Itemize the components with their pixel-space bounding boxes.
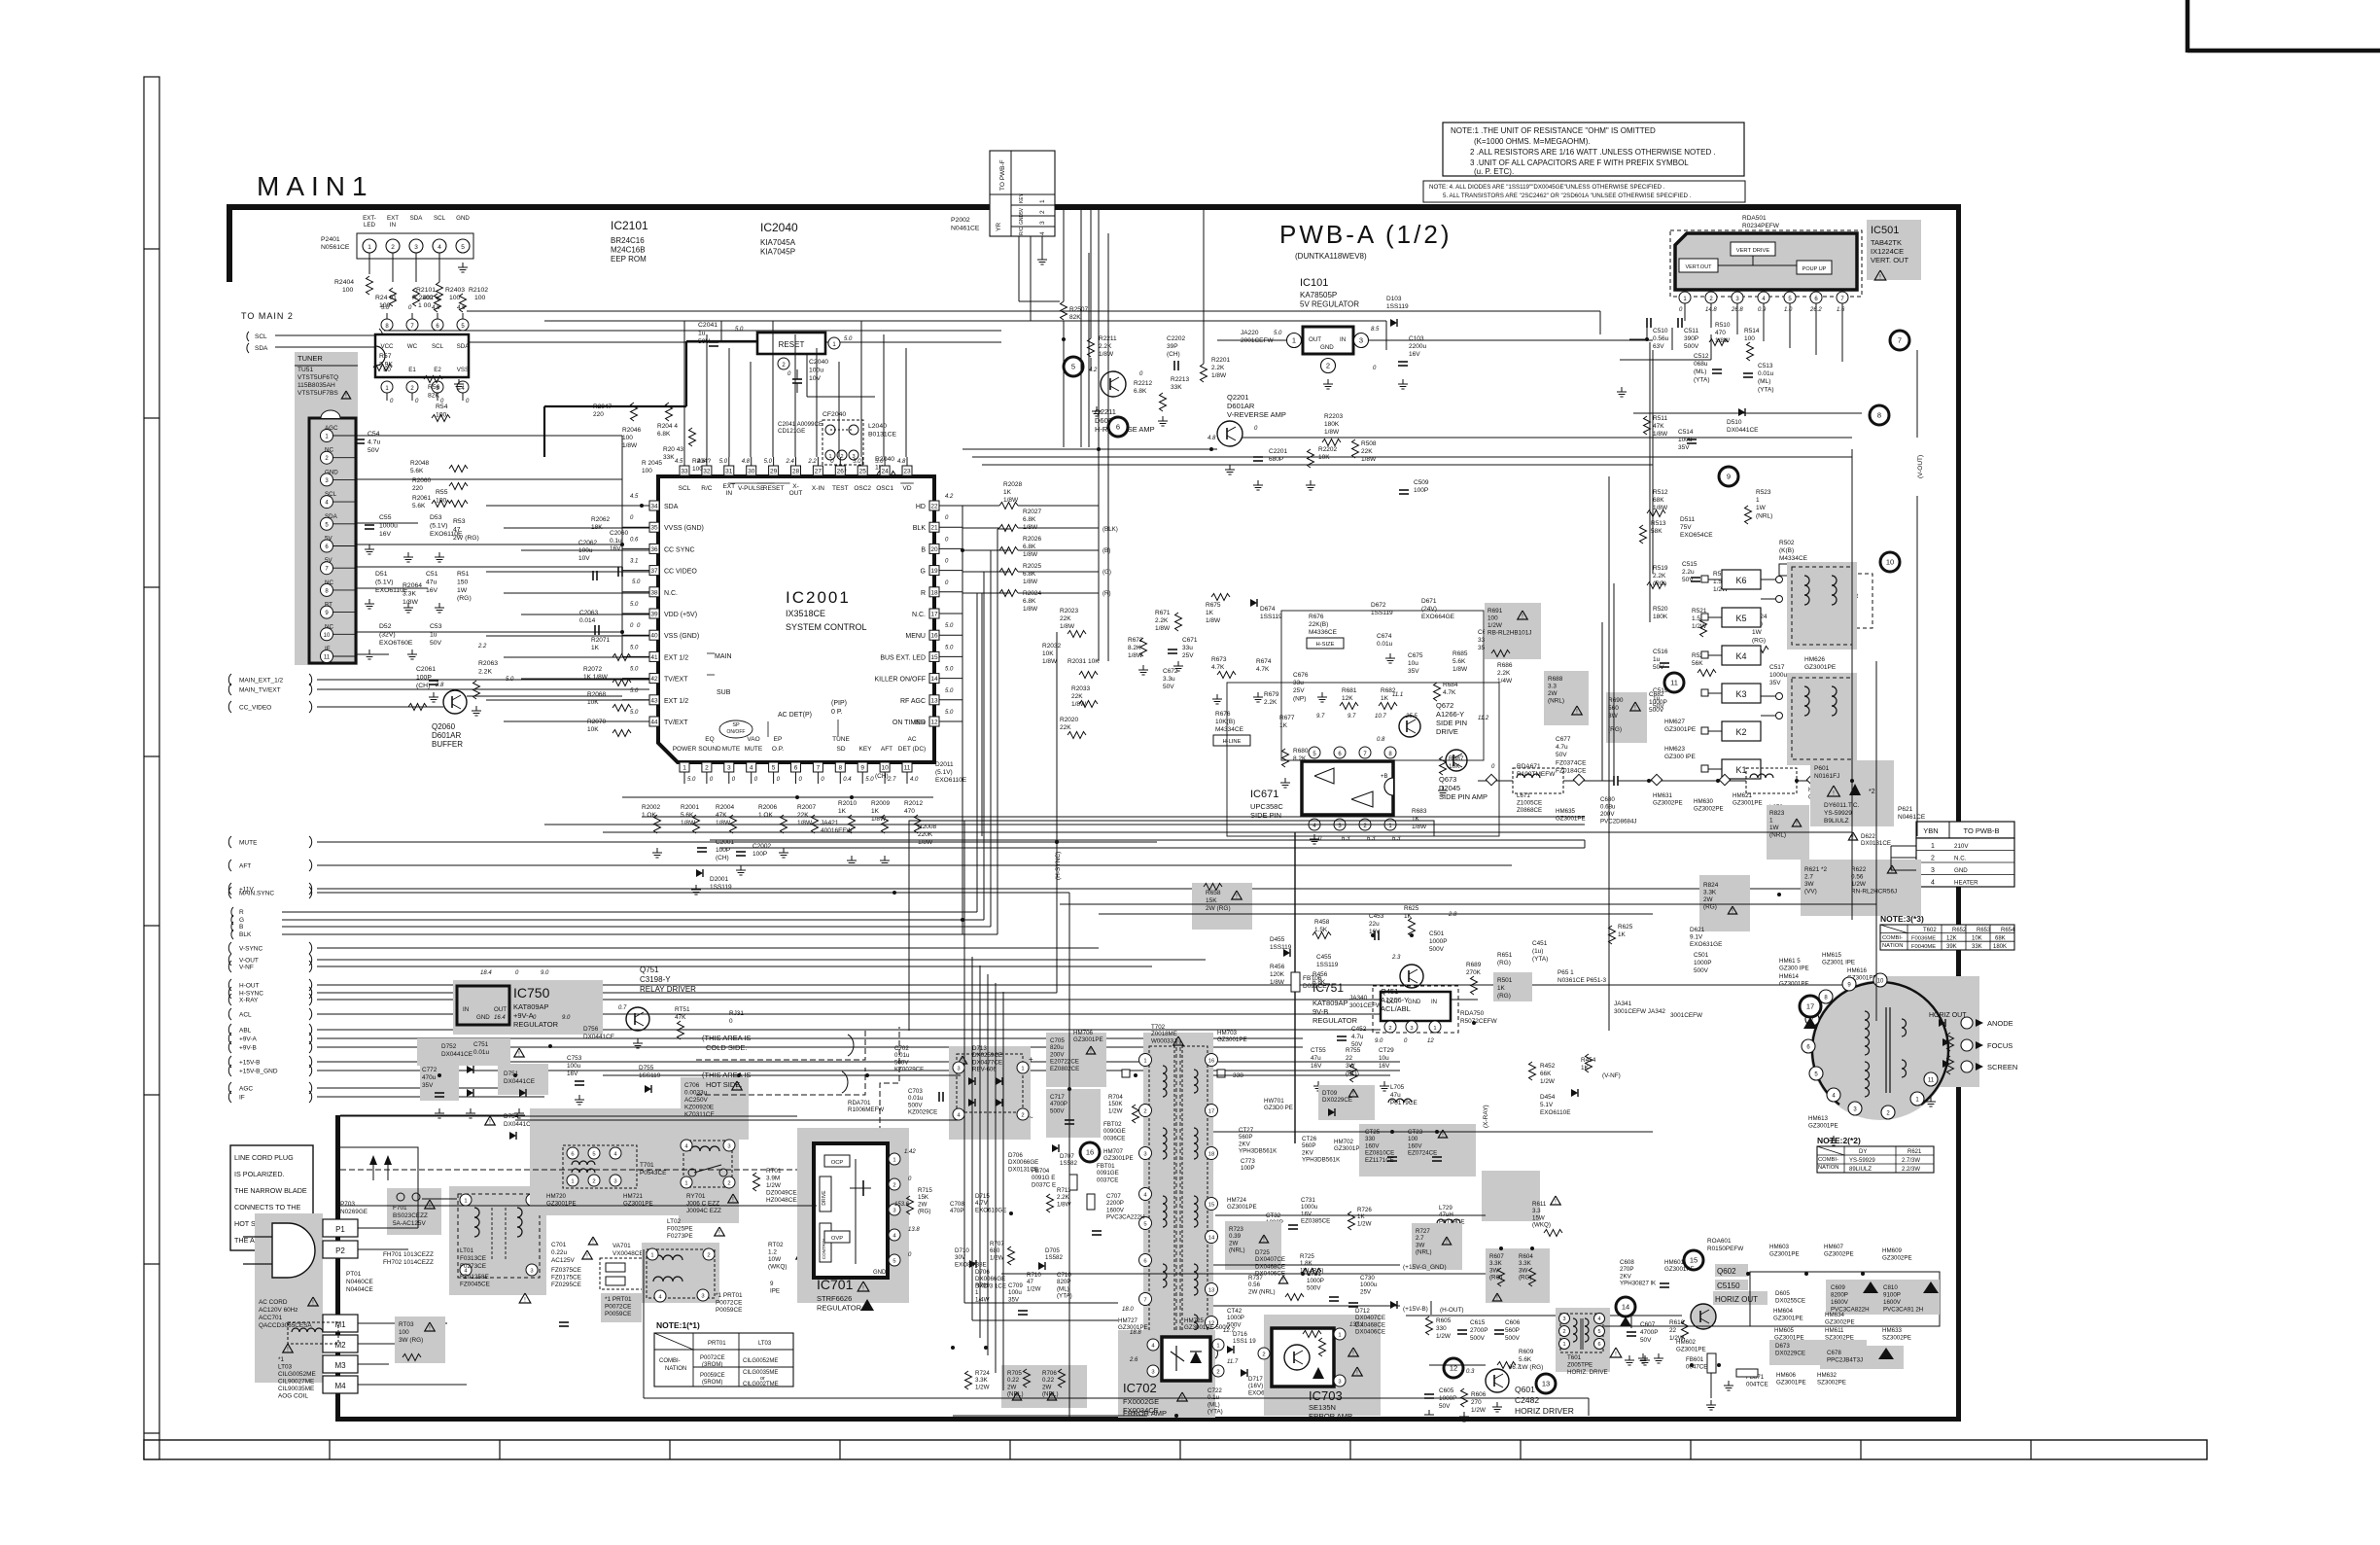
svg-text:1/8W: 1/8W [1653, 431, 1668, 438]
svg-text:500V: 500V [1649, 707, 1664, 714]
svg-text:4.8: 4.8 [897, 459, 906, 465]
svg-text:D454: D454 [1540, 1094, 1556, 1101]
svg-text:EEP ROM: EEP ROM [611, 255, 647, 263]
svg-text:35V: 35V [1678, 444, 1690, 451]
svg-text:C2060: C2060 [610, 530, 629, 537]
svg-text:R605: R605 [1436, 1317, 1452, 1324]
svg-text:0036CE: 0036CE [1103, 1135, 1125, 1141]
svg-text:R621: R621 [1907, 1149, 1922, 1155]
svg-text:P2002: P2002 [951, 217, 970, 224]
svg-text:3.3K: 3.3K [1703, 890, 1717, 896]
svg-text:POUP UP: POUP UP [1802, 266, 1827, 272]
svg-text:1/2W: 1/2W [1487, 622, 1503, 629]
svg-text:NATION: NATION [1818, 1165, 1838, 1171]
svg-text:160V: 160V [1365, 1142, 1380, 1149]
svg-text:1K: 1K [1381, 695, 1389, 702]
svg-text:R2023: R2023 [1060, 608, 1079, 614]
svg-text:1W (RG): 1W (RG) [1519, 1364, 1543, 1371]
svg-text:11.1: 11.1 [1392, 692, 1403, 698]
svg-text:VERT.OUT: VERT.OUT [1685, 264, 1712, 270]
svg-text:25V: 25V [1360, 1288, 1372, 1295]
svg-text:AC CORD: AC CORD [259, 1299, 288, 1306]
svg-text:FH702 1014CEZZ: FH702 1014CEZZ [383, 1259, 434, 1266]
svg-text:0.014: 0.014 [579, 617, 596, 624]
svg-text:(5.1V): (5.1V) [375, 579, 394, 585]
svg-text:R/C: R/C [701, 485, 713, 492]
svg-text:1000u: 1000u [1301, 1204, 1318, 1211]
svg-text:DRIVE: DRIVE [822, 1190, 827, 1206]
svg-text:28: 28 [792, 469, 800, 475]
svg-text:SDA: SDA [255, 345, 268, 352]
svg-text:C717: C717 [1050, 1094, 1065, 1101]
svg-text:LINE CORD PLUG: LINE CORD PLUG [234, 1153, 294, 1162]
svg-text:100u: 100u [1008, 1289, 1022, 1296]
svg-text:YPH3DB561K: YPH3DB561K [1239, 1148, 1277, 1155]
svg-text:33K: 33K [1972, 944, 1982, 950]
svg-text:K5: K5 [1735, 614, 1746, 623]
svg-text:1/8W: 1/8W [1023, 551, 1038, 558]
svg-text:0.4: 0.4 [843, 777, 852, 783]
svg-text:10u: 10u [1408, 660, 1418, 667]
svg-text:5V: 5V [1019, 207, 1025, 214]
svg-text:C510: C510 [1653, 328, 1668, 334]
svg-text:H-SIZE: H-SIZE [1315, 642, 1334, 648]
svg-text:VTST5UF7BS: VTST5UF7BS [297, 390, 338, 397]
svg-text:R2025: R2025 [1023, 563, 1042, 570]
svg-text:WC: WC [407, 343, 418, 350]
svg-text:R651: R651 [1497, 952, 1513, 959]
svg-text:19: 19 [930, 568, 938, 575]
svg-text:R2046: R2046 [622, 427, 642, 434]
svg-text:GZ3001PE: GZ3001PE [1804, 664, 1837, 671]
svg-text:EXT: EXT [387, 215, 399, 222]
svg-text:1K: 1K [1357, 1213, 1365, 1220]
svg-text:560P: 560P [1302, 1142, 1315, 1149]
svg-text:0.22: 0.22 [1042, 1377, 1055, 1384]
svg-text:1SS119: 1SS119 [1260, 614, 1282, 620]
svg-text:VSS: VSS [457, 367, 469, 373]
svg-text:82K: 82K [428, 392, 440, 399]
svg-text:2.7/3W: 2.7/3W [1902, 1158, 1920, 1164]
svg-text:2700P: 2700P [1470, 1327, 1487, 1334]
svg-text:2.7: 2.7 [1804, 874, 1813, 881]
svg-text:GND: GND [873, 1270, 887, 1276]
svg-text:1: 1 [571, 1179, 574, 1185]
svg-text:1/8W: 1/8W [1060, 623, 1075, 630]
svg-text:D672: D672 [1371, 602, 1386, 609]
svg-text:500V: 500V [908, 1102, 923, 1108]
svg-text:8200P: 8200P [1831, 1292, 1848, 1299]
svg-text:9.0: 9.0 [562, 1015, 571, 1021]
svg-text:R: R [239, 909, 244, 916]
svg-text:56K: 56K [1692, 660, 1703, 667]
svg-text:DX0477CE: DX0477CE [972, 1059, 1002, 1066]
svg-text:R622: R622 [1851, 866, 1867, 873]
svg-text:(G): (G) [1102, 569, 1111, 576]
svg-text:2.4: 2.4 [786, 459, 795, 465]
svg-text:35: 35 [650, 525, 658, 532]
svg-text:AC125V: AC125V [551, 1257, 576, 1264]
svg-text:SOUND: SOUND [698, 746, 721, 753]
svg-text:1: 1 [1562, 1342, 1565, 1348]
svg-text:18.8: 18.8 [1130, 1330, 1141, 1336]
svg-text:L729: L729 [1439, 1205, 1452, 1211]
svg-text:1K: 1K [1279, 722, 1288, 729]
svg-text:6.3: 6.3 [1342, 836, 1350, 842]
svg-text:X-: X- [792, 483, 799, 490]
svg-text:0.01u: 0.01u [1377, 641, 1393, 648]
svg-text:Q2201: Q2201 [1227, 393, 1249, 402]
svg-text:120K: 120K [1270, 971, 1285, 978]
svg-text:TUNE: TUNE [832, 736, 850, 743]
svg-text:R514: R514 [1744, 328, 1760, 334]
svg-text:R2064: R2064 [402, 582, 422, 589]
svg-text:N0561CE: N0561CE [321, 244, 350, 251]
svg-text:HM609: HM609 [1882, 1247, 1903, 1254]
svg-text:DX0441CE: DX0441CE [583, 1034, 614, 1040]
svg-text:R611: R611 [1532, 1201, 1547, 1208]
svg-text:PRT01: PRT01 [708, 1341, 726, 1347]
svg-text:115B8035AH: 115B8035AH [297, 382, 335, 389]
svg-text:15K: 15K [1206, 897, 1217, 904]
svg-text:22K: 22K [1060, 724, 1071, 731]
svg-text:R519: R519 [1653, 565, 1668, 572]
svg-text:F0273CE: F0273CE [460, 1263, 486, 1270]
svg-text:160V: 160V [1408, 1142, 1422, 1149]
svg-text:5.0: 5.0 [687, 777, 696, 783]
svg-text:4.7K: 4.7K [1256, 666, 1270, 673]
svg-text:R680: R680 [1293, 748, 1309, 755]
svg-text:47K: 47K [1653, 423, 1664, 430]
svg-text:C672: C672 [1163, 668, 1178, 675]
svg-text:RT02: RT02 [768, 1242, 784, 1248]
svg-text:H-SYNC: H-SYNC [239, 991, 263, 998]
svg-text:R2203: R2203 [1324, 413, 1344, 420]
svg-text:T602: T602 [1923, 928, 1937, 933]
svg-text:KZ00920E: KZ00920E [684, 1105, 714, 1111]
svg-text:HORIZ. DRIVE: HORIZ. DRIVE [1567, 1369, 1608, 1376]
svg-text:P0059CE: P0059CE [700, 1373, 725, 1379]
svg-text:(VV): (VV) [1804, 889, 1817, 895]
svg-text:100: 100 [1744, 335, 1755, 342]
svg-text:500V: 500V [1470, 1335, 1486, 1342]
svg-text:100P: 100P [1414, 487, 1428, 494]
svg-text:(5.1V): (5.1V) [430, 522, 448, 529]
svg-text:R2048: R2048 [410, 460, 430, 467]
svg-text:M4336CE: M4336CE [1309, 629, 1338, 636]
svg-text:18.0: 18.0 [1122, 1307, 1134, 1313]
svg-text:JA340: JA340 [1349, 995, 1368, 1001]
svg-text:IC2040: IC2040 [760, 221, 798, 234]
svg-text:D2011: D2011 [935, 761, 954, 768]
svg-text:470P: 470P [950, 1208, 963, 1214]
svg-text:DX0441CE: DX0441CE [1727, 427, 1759, 434]
svg-text:R710: R710 [1027, 1272, 1041, 1279]
svg-text:16V: 16V [1409, 351, 1420, 358]
svg-text:C2063: C2063 [579, 610, 599, 616]
svg-text:EZ0802CE: EZ0802CE [1050, 1066, 1079, 1072]
svg-text:IC750: IC750 [513, 985, 550, 1001]
svg-text:100: 100 [399, 1329, 409, 1336]
svg-text:0.3: 0.3 [1466, 1369, 1475, 1375]
svg-text:(+15V-B): (+15V-B) [1403, 1306, 1428, 1313]
svg-text:R2006: R2006 [758, 804, 778, 811]
svg-text:11: 11 [904, 765, 911, 772]
svg-text:(K(B): (K(B) [1779, 547, 1794, 554]
svg-text:1: 1 [892, 1158, 895, 1164]
svg-text:N0161FJ: N0161FJ [1814, 773, 1839, 780]
svg-text:R511: R511 [1653, 415, 1667, 422]
svg-text:G: G [921, 569, 926, 576]
svg-text:~: ~ [1029, 1113, 1033, 1122]
svg-text:R2009: R2009 [871, 800, 891, 807]
svg-text:CC VIDEO: CC VIDEO [664, 569, 697, 576]
svg-text:1SS1 19: 1SS1 19 [1233, 1338, 1256, 1345]
svg-text:C702: C702 [894, 1045, 909, 1052]
svg-text:VERT DRIVE: VERT DRIVE [1736, 248, 1770, 254]
svg-text:D705: D705 [1045, 1247, 1060, 1254]
svg-text:9.0: 9.0 [541, 970, 549, 976]
svg-text:GZ3001PE: GZ3001PE [1779, 981, 1809, 988]
svg-text:89LIULZ: 89LIULZ [1849, 1167, 1872, 1173]
svg-text:100P: 100P [1241, 1165, 1254, 1172]
svg-text:(YTA): (YTA) [1758, 386, 1774, 393]
svg-text:FZ0045CE: FZ0045CE [460, 1282, 490, 1288]
svg-text:10: 10 [881, 765, 889, 772]
svg-text:3.3K: 3.3K [1489, 1260, 1503, 1267]
svg-text:31: 31 [725, 469, 733, 475]
svg-text:OUT: OUT [789, 490, 803, 497]
svg-text:270K: 270K [1466, 969, 1482, 976]
svg-text:9.7: 9.7 [1316, 714, 1325, 720]
svg-text:16: 16 [930, 633, 938, 640]
svg-text:HM61 5: HM61 5 [1779, 958, 1801, 965]
svg-text:(RG): (RG) [1608, 726, 1622, 733]
svg-text:(NRL): (NRL) [1416, 1249, 1432, 1256]
svg-text:SUB: SUB [717, 689, 731, 696]
svg-text:5.0: 5.0 [875, 459, 884, 465]
svg-text:UPC358C: UPC358C [1250, 802, 1283, 811]
svg-text:1/8W: 1/8W [1003, 497, 1019, 504]
svg-text:DX0441CE: DX0441CE [504, 1078, 535, 1085]
svg-text:1: 1 [1292, 336, 1296, 345]
svg-text:5.6K: 5.6K [681, 812, 694, 819]
svg-text:FB704: FB704 [1032, 1168, 1050, 1175]
svg-text:VERT. OUT: VERT. OUT [1871, 256, 1908, 264]
svg-text:FZ01258E: FZ01258E [460, 1274, 489, 1281]
svg-text:GZ3001PE: GZ3001PE [1732, 800, 1763, 807]
svg-text:C772: C772 [422, 1067, 437, 1073]
svg-text:2.3: 2.3 [1391, 955, 1401, 961]
svg-text:D707: D707 [1060, 1153, 1074, 1160]
svg-text:1K: 1K [871, 808, 880, 815]
svg-text:NOTE: 4. ALL DIODES ARE "1SS11: NOTE: 4. ALL DIODES ARE "1SS119""DX0045G… [1429, 184, 1665, 191]
svg-text:(1u): (1u) [1532, 948, 1543, 955]
svg-text:IC501: IC501 [1871, 225, 1899, 236]
svg-text:+: + [1029, 1055, 1033, 1064]
svg-text:C703: C703 [908, 1088, 923, 1095]
svg-text:D621: D621 [1690, 927, 1705, 933]
svg-text:CIL90027ME: CIL90027ME [278, 1379, 314, 1386]
svg-text:10K(B): 10K(B) [1215, 719, 1235, 725]
svg-text:IND: IND [914, 720, 926, 726]
svg-text:1: 1 [682, 765, 686, 772]
svg-text:REGULATOR: REGULATOR [1312, 1016, 1358, 1025]
svg-text:1: 1 [1433, 1026, 1436, 1032]
svg-text:(V-NF): (V-NF) [1602, 1072, 1621, 1079]
svg-text:IS POLARIZED.: IS POLARIZED. [234, 1170, 285, 1178]
svg-text:EZ0385CE: EZ0385CE [1301, 1218, 1330, 1225]
svg-text:6.8K: 6.8K [657, 431, 671, 438]
svg-text:R2031 10K: R2031 10K [1067, 658, 1100, 665]
svg-text:5: 5 [1071, 363, 1075, 371]
svg-text:1SS119: 1SS119 [710, 884, 732, 891]
svg-text:6: 6 [1116, 423, 1120, 432]
svg-text:HM727: HM727 [1118, 1317, 1138, 1324]
svg-text:1/8W: 1/8W [1099, 351, 1114, 358]
svg-text:YS-59929: YS-59929 [1824, 810, 1852, 817]
svg-text:OCP: OCP [831, 1160, 844, 1166]
svg-text:100: 100 [1408, 1136, 1418, 1142]
svg-text:ANODE: ANODE [1987, 1019, 2013, 1028]
svg-text:HM703: HM703 [1217, 1030, 1238, 1036]
svg-text:R2033: R2033 [1071, 685, 1091, 692]
svg-text:1SS119: 1SS119 [1316, 962, 1339, 968]
svg-text:12: 12 [930, 720, 938, 726]
svg-text:D605: D605 [1775, 1290, 1790, 1297]
svg-text:R456: R456 [1270, 964, 1285, 970]
svg-text:1K: 1K [1206, 610, 1214, 616]
svg-text:9: 9 [860, 765, 864, 772]
svg-text:1: 1 [1338, 1333, 1341, 1339]
svg-text:DY6011.T.C.: DY6011.T.C. [1824, 802, 1860, 809]
svg-text:C2202: C2202 [1167, 335, 1186, 342]
svg-text:1: 1 [1769, 818, 1773, 825]
svg-text:(RG): (RG) [457, 595, 472, 602]
svg-text:VX0048CE: VX0048CE [612, 1250, 644, 1257]
svg-text:YR: YR [996, 223, 1002, 231]
svg-text:(PIP): (PIP) [831, 700, 847, 707]
svg-text:+9V-B: +9V-B [239, 1045, 257, 1052]
svg-text:4: 4 [1039, 231, 1046, 235]
svg-text:1/8W: 1/8W [1206, 617, 1221, 624]
svg-text:HM702: HM702 [1334, 1139, 1354, 1145]
svg-text:FZ0295CE: FZ0295CE [551, 1282, 581, 1288]
svg-text:REGULATOR: REGULATOR [817, 1304, 862, 1313]
svg-text:PVC2D8684J: PVC2D8684J [1600, 819, 1637, 825]
svg-text:16: 16 [1086, 1148, 1094, 1157]
svg-text:10: 10 [1886, 558, 1894, 567]
svg-text:0 P.: 0 P. [831, 709, 843, 716]
svg-text:C706: C706 [684, 1082, 700, 1089]
svg-text:HM603: HM603 [1769, 1244, 1790, 1250]
svg-text:(RG): (RG) [918, 1209, 930, 1215]
svg-text:X-RAY: X-RAY [239, 998, 259, 1004]
svg-text:D51: D51 [375, 571, 388, 578]
svg-text:EXO664GE: EXO664GE [1421, 614, 1455, 620]
svg-text:500V: 500V [1050, 1107, 1065, 1114]
svg-text:BS023CEZZ: BS023CEZZ [393, 1212, 428, 1219]
svg-text:50V: 50V [1640, 1337, 1652, 1344]
svg-text:SP: SP [732, 722, 740, 728]
svg-text:F0273PE: F0273PE [667, 1233, 693, 1240]
svg-text:12K: 12K [1946, 935, 1957, 941]
svg-text:1/8W: 1/8W [1023, 579, 1038, 585]
svg-text:1/8W: 1/8W [1155, 625, 1171, 632]
svg-text:2: 2 [1143, 1109, 1146, 1115]
svg-text:37: 37 [650, 568, 658, 575]
svg-text:GZ3D0 PE: GZ3D0 PE [1264, 1105, 1293, 1111]
svg-text:RELAY DRIVER: RELAY DRIVER [640, 985, 696, 994]
svg-text:R2012: R2012 [904, 800, 924, 807]
svg-text:R2102: R2102 [469, 287, 488, 294]
svg-text:Q601: Q601 [1515, 1385, 1535, 1394]
svg-text:R2403: R2403 [445, 287, 465, 294]
svg-text:MUTE: MUTE [745, 746, 763, 753]
svg-text:5. ALL TRANSISTORS ARE "2SC246: 5. ALL TRANSISTORS ARE "2SC2462" OR "2SD… [1443, 193, 1692, 199]
svg-text:NOTE:2(*2): NOTE:2(*2) [1817, 1136, 1861, 1145]
svg-text:HW701: HW701 [1264, 1098, 1284, 1105]
svg-text:HORIZ OUT: HORIZ OUT [1715, 1295, 1758, 1304]
svg-text:680: 680 [990, 1247, 1000, 1254]
svg-text:V-SYNC: V-SYNC [239, 946, 263, 953]
svg-text:IN: IN [726, 490, 733, 497]
svg-text:EXO6110E: EXO6110E [430, 531, 463, 538]
svg-text:M4: M4 [334, 1382, 346, 1390]
svg-text:3 .UNIT OF ALL CAPACITORS ARE: 3 .UNIT OF ALL CAPACITORS ARE F WITH PRE… [1470, 158, 1689, 167]
svg-text:18: 18 [1208, 1152, 1214, 1158]
svg-text:B: B [921, 546, 926, 553]
svg-text:5.6K: 5.6K [410, 468, 424, 474]
svg-text:COMBI-: COMBI- [1882, 935, 1903, 941]
svg-text:210V: 210V [1954, 843, 1969, 850]
svg-text:2: 2 [592, 1179, 595, 1185]
svg-text:C708: C708 [950, 1201, 964, 1208]
svg-text:R606: R606 [1471, 1391, 1487, 1398]
svg-text:3W: 3W [1804, 881, 1815, 888]
svg-text:C2041: C2041 [698, 322, 717, 329]
svg-text:RF AGC: RF AGC [900, 698, 926, 705]
svg-text:1W: 1W [1752, 629, 1763, 636]
svg-text:0.01u: 0.01u [908, 1095, 924, 1102]
svg-text:D037C E: D037C E [1032, 1181, 1056, 1188]
svg-text:*2: *2 [1869, 789, 1875, 795]
svg-text:15K: 15K [918, 1194, 929, 1201]
svg-text:P0072CE: P0072CE [716, 1300, 742, 1307]
svg-text:2: 2 [391, 244, 395, 251]
svg-text:10K: 10K [1318, 454, 1330, 461]
svg-text:22u: 22u [1369, 921, 1380, 928]
svg-text:10K: 10K [1042, 650, 1054, 657]
svg-text:DRIVE: DRIVE [1436, 727, 1458, 736]
svg-text:R2072: R2072 [583, 666, 603, 673]
svg-text:25: 25 [859, 469, 867, 475]
svg-text:2W: 2W [1007, 1384, 1016, 1390]
svg-text:K1: K1 [1735, 765, 1746, 775]
svg-text:1K: 1K [1497, 985, 1506, 992]
svg-text:068u: 068u [1694, 361, 1708, 368]
svg-text:P2: P2 [335, 1247, 345, 1255]
svg-text:3W: 3W [1416, 1242, 1424, 1248]
svg-text:1/8W: 1/8W [1324, 429, 1340, 436]
svg-text:1K 1/8W: 1K 1/8W [583, 674, 609, 681]
svg-text:GZ3001PE: GZ3001PE [1103, 1155, 1134, 1162]
svg-text:1SS119: 1SS119 [1270, 944, 1292, 951]
svg-text:5.6K: 5.6K [1519, 1356, 1532, 1363]
svg-text:18: 18 [930, 589, 938, 596]
svg-text:13.8: 13.8 [908, 1227, 920, 1233]
svg-text:KAT809AP: KAT809AP [513, 1002, 549, 1011]
